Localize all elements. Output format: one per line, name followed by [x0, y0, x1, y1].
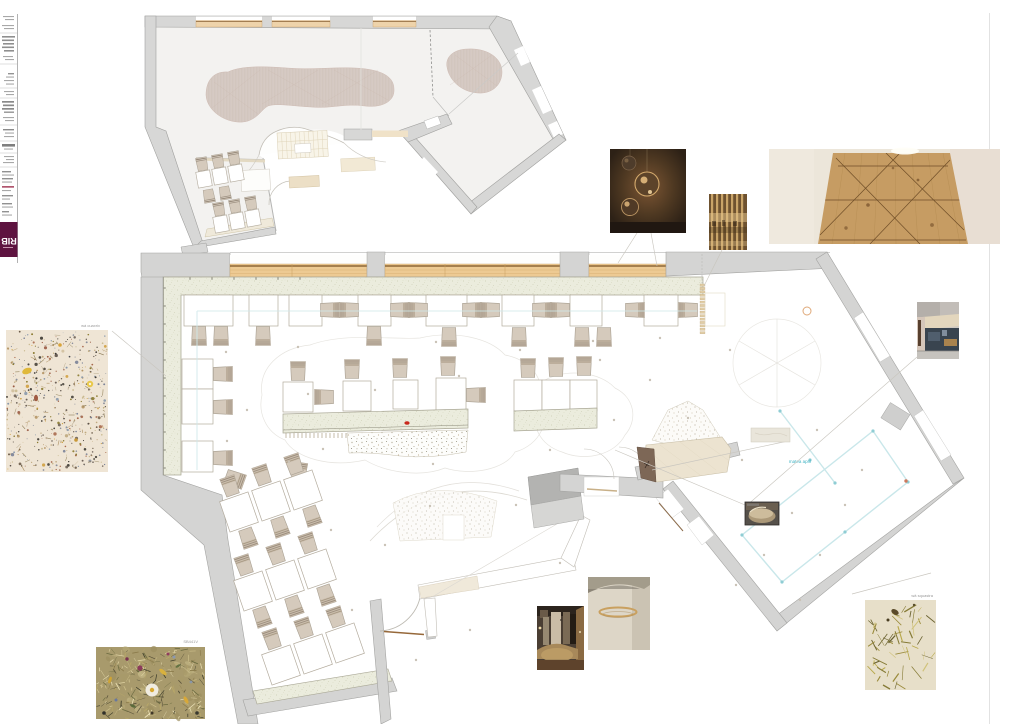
svg-text:wá cuaxrix: wá cuaxrix: [81, 323, 100, 328]
svg-text:RIB: RIB: [1, 236, 17, 246]
svg-text:matea april: matea april: [789, 459, 811, 464]
svg-text:SB441V: SB441V: [183, 639, 198, 644]
svg-text:wâ squastra: wâ squastra: [911, 593, 933, 598]
